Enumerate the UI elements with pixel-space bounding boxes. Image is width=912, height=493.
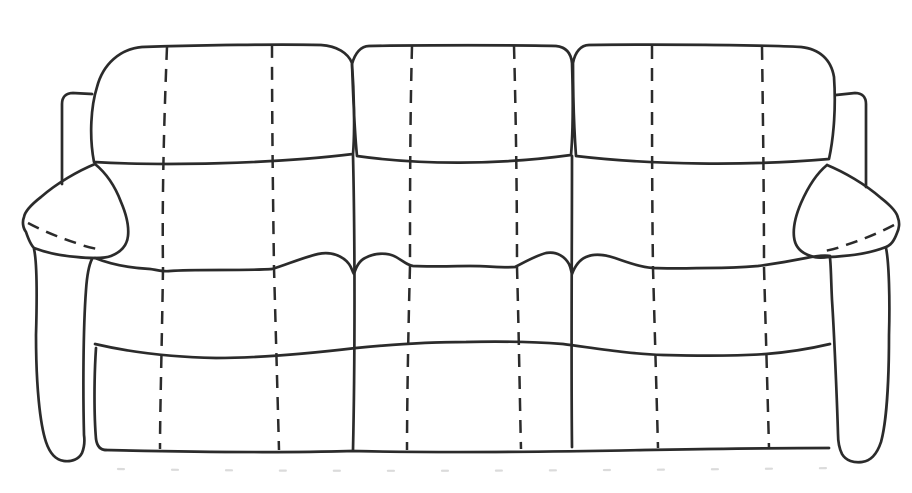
sofa-drawing-canvas: [0, 0, 912, 493]
background: [0, 0, 912, 493]
sofa-line-drawing: [0, 0, 912, 493]
